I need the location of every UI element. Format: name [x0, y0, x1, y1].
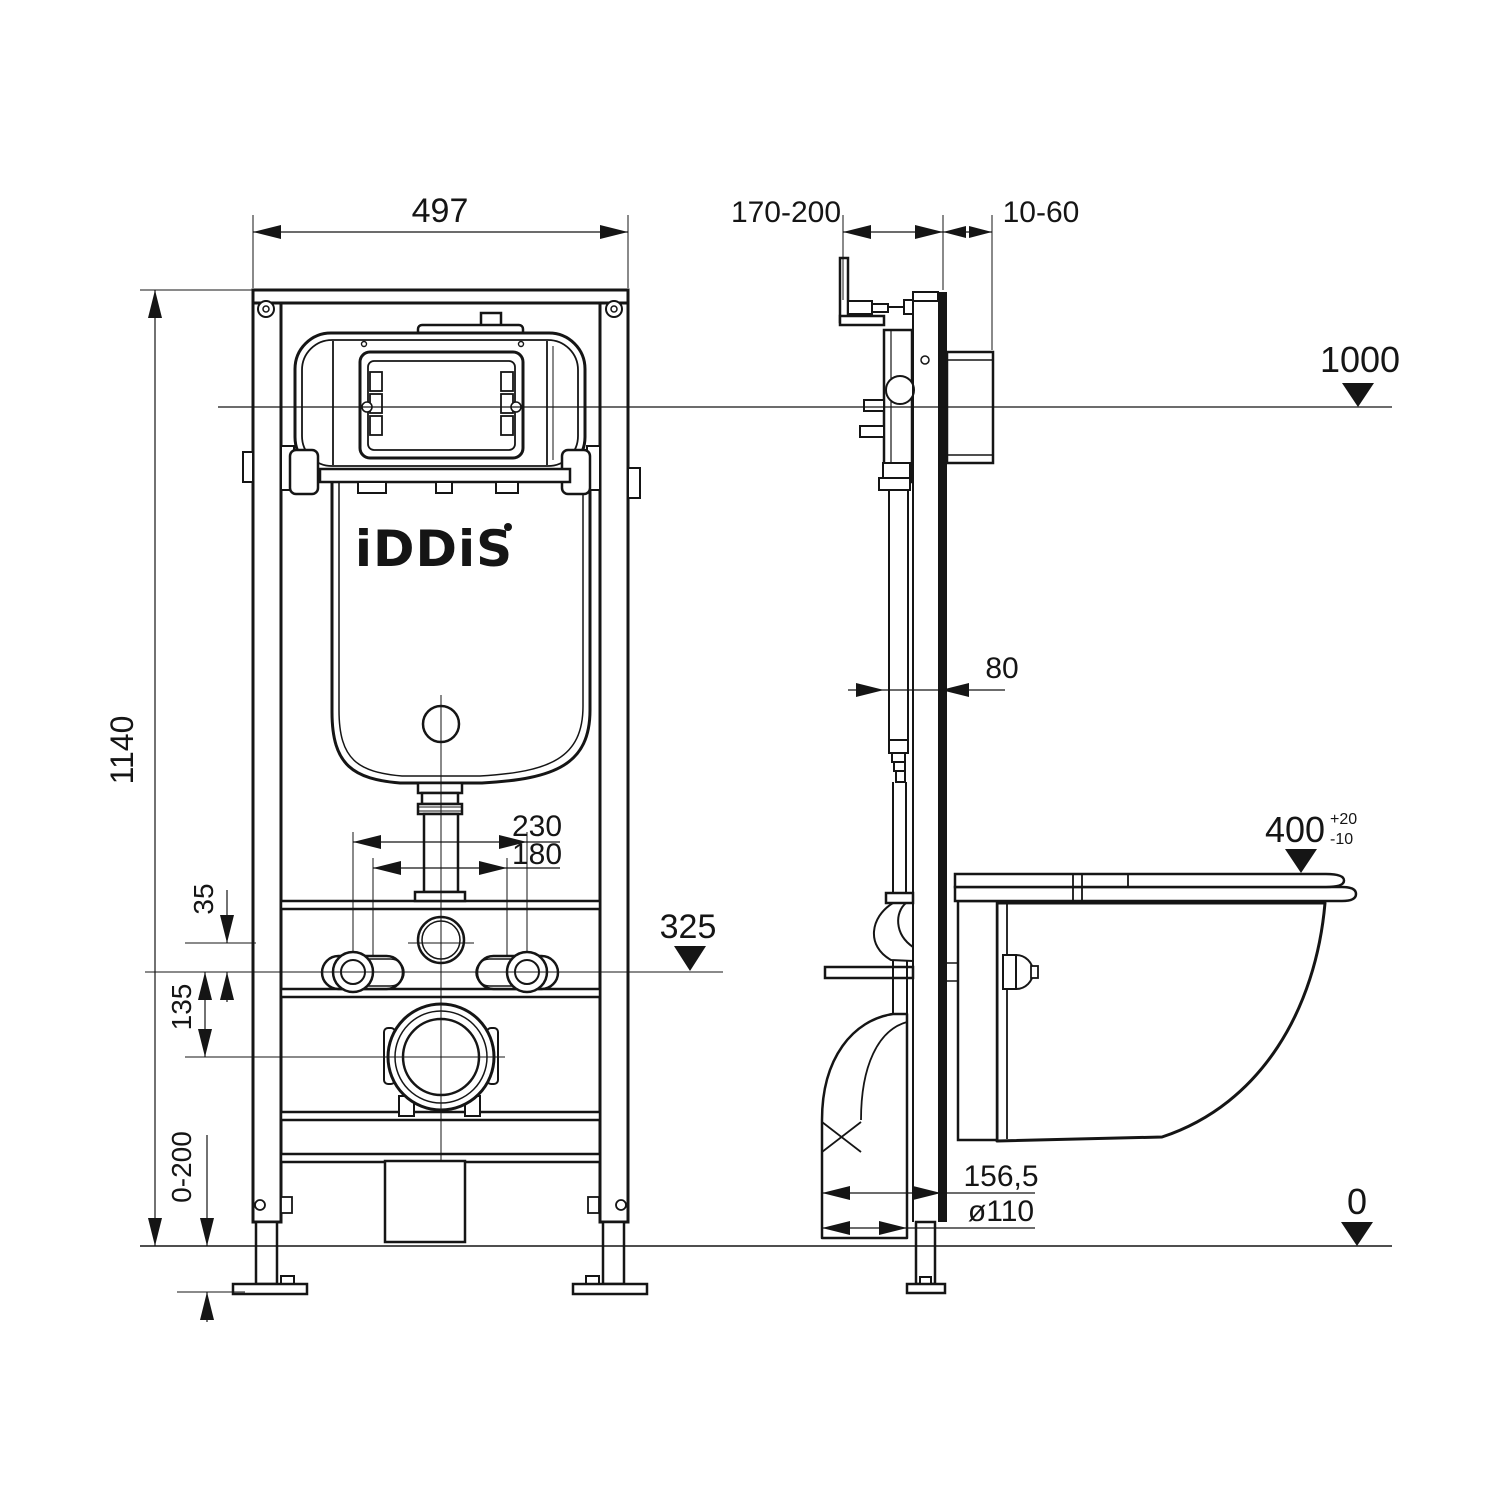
- dim-label-400-plus: +20: [1330, 811, 1357, 828]
- corner-screw-icon: [258, 301, 274, 317]
- dim-label-0-200: 0-200: [166, 1131, 197, 1203]
- stud-cover: [1003, 955, 1016, 989]
- side-cistern: [860, 330, 914, 961]
- dim-finish-gap: 10-60: [943, 196, 1079, 350]
- flush-plate-assembly: [290, 313, 590, 494]
- fixing-rod-side: [825, 967, 913, 978]
- installation-frame-drawing: iDDiS: [0, 0, 1500, 1500]
- left-foot-tube: [256, 1222, 277, 1284]
- dim-frame-width: 497: [253, 192, 628, 288]
- top-beam: [253, 290, 628, 303]
- dim-level-1000: 1000: [1320, 339, 1400, 407]
- dim-label-0: 0: [1347, 1181, 1367, 1222]
- dim-label-10-60: 10-60: [1003, 196, 1080, 229]
- level-0-triangle-icon: [1341, 1222, 1373, 1246]
- wall-bracket: [840, 258, 913, 325]
- dim-profile-depth: 80: [848, 652, 1019, 697]
- side-foot-tube: [916, 1222, 935, 1284]
- right-rail: [600, 290, 628, 1222]
- dim-label-1000: 1000: [1320, 339, 1400, 380]
- dim-stud-level: 325: [660, 908, 717, 971]
- dim-drain-offset: 135: [166, 972, 212, 1057]
- fill-valve: [886, 376, 914, 404]
- arch-bottom-rail: [320, 469, 570, 482]
- bowl-flange: [958, 901, 997, 1140]
- dim-label-35: 35: [188, 883, 219, 914]
- bowl-body: [997, 903, 1325, 1141]
- corner-screw-icon: [606, 301, 622, 317]
- dim-frame-height: 1140: [104, 290, 253, 1246]
- dim-label-325: 325: [660, 908, 717, 946]
- dim-stud-spacing-narrow: 180: [373, 838, 562, 875]
- dim-label-400: 400: [1265, 809, 1325, 850]
- level-1000-triangle-icon: [1342, 383, 1374, 407]
- dim-bowl-height: 400 +20 -10: [1265, 809, 1357, 873]
- dim-label-135: 135: [166, 984, 197, 1031]
- dim-label-156-5: 156,5: [963, 1160, 1038, 1193]
- right-foot-tube: [603, 1222, 624, 1284]
- right-foot-plate: [573, 1284, 647, 1294]
- dim-label-o110: ø110: [968, 1195, 1034, 1228]
- drain-outlet-box: [385, 1161, 465, 1242]
- level-400-triangle-icon: [1285, 849, 1317, 873]
- dim-install-depth: 170-200: [731, 196, 943, 300]
- dim-label-80: 80: [985, 652, 1018, 685]
- toilet-lid: [955, 874, 1344, 887]
- side-foot-plate: [907, 1284, 945, 1293]
- toilet-bowl: [947, 874, 1356, 1141]
- left-rail: [253, 290, 281, 1222]
- arch-foot-left: [290, 450, 318, 494]
- dim-label-180: 180: [512, 838, 562, 871]
- dim-label-1140: 1140: [104, 716, 140, 785]
- side-frame-profile: [907, 292, 947, 1293]
- flush-window: [360, 352, 523, 458]
- side-view: [822, 258, 1356, 1293]
- right-wall-tab: [628, 468, 640, 498]
- technical-drawing-canvas: iDDiS: [0, 0, 1500, 1500]
- level-325-triangle-icon: [674, 946, 706, 971]
- registered-mark-dot-icon: [504, 523, 512, 531]
- cistern-tank: iDDiS: [332, 455, 590, 783]
- dim-label-170-200: 170-200: [731, 196, 841, 229]
- front-face-plate: [938, 292, 947, 1222]
- toilet-seat: [955, 887, 1356, 901]
- dim-label-497: 497: [412, 192, 469, 230]
- side-drain-elbow: [822, 961, 907, 1238]
- left-wall-tab: [243, 452, 253, 482]
- dim-label-400-minus: -10: [1330, 831, 1353, 848]
- dim-level-floor: 0: [1341, 1181, 1373, 1246]
- brand-logo: iDDiS: [355, 520, 513, 578]
- front-view: iDDiS: [145, 290, 723, 1294]
